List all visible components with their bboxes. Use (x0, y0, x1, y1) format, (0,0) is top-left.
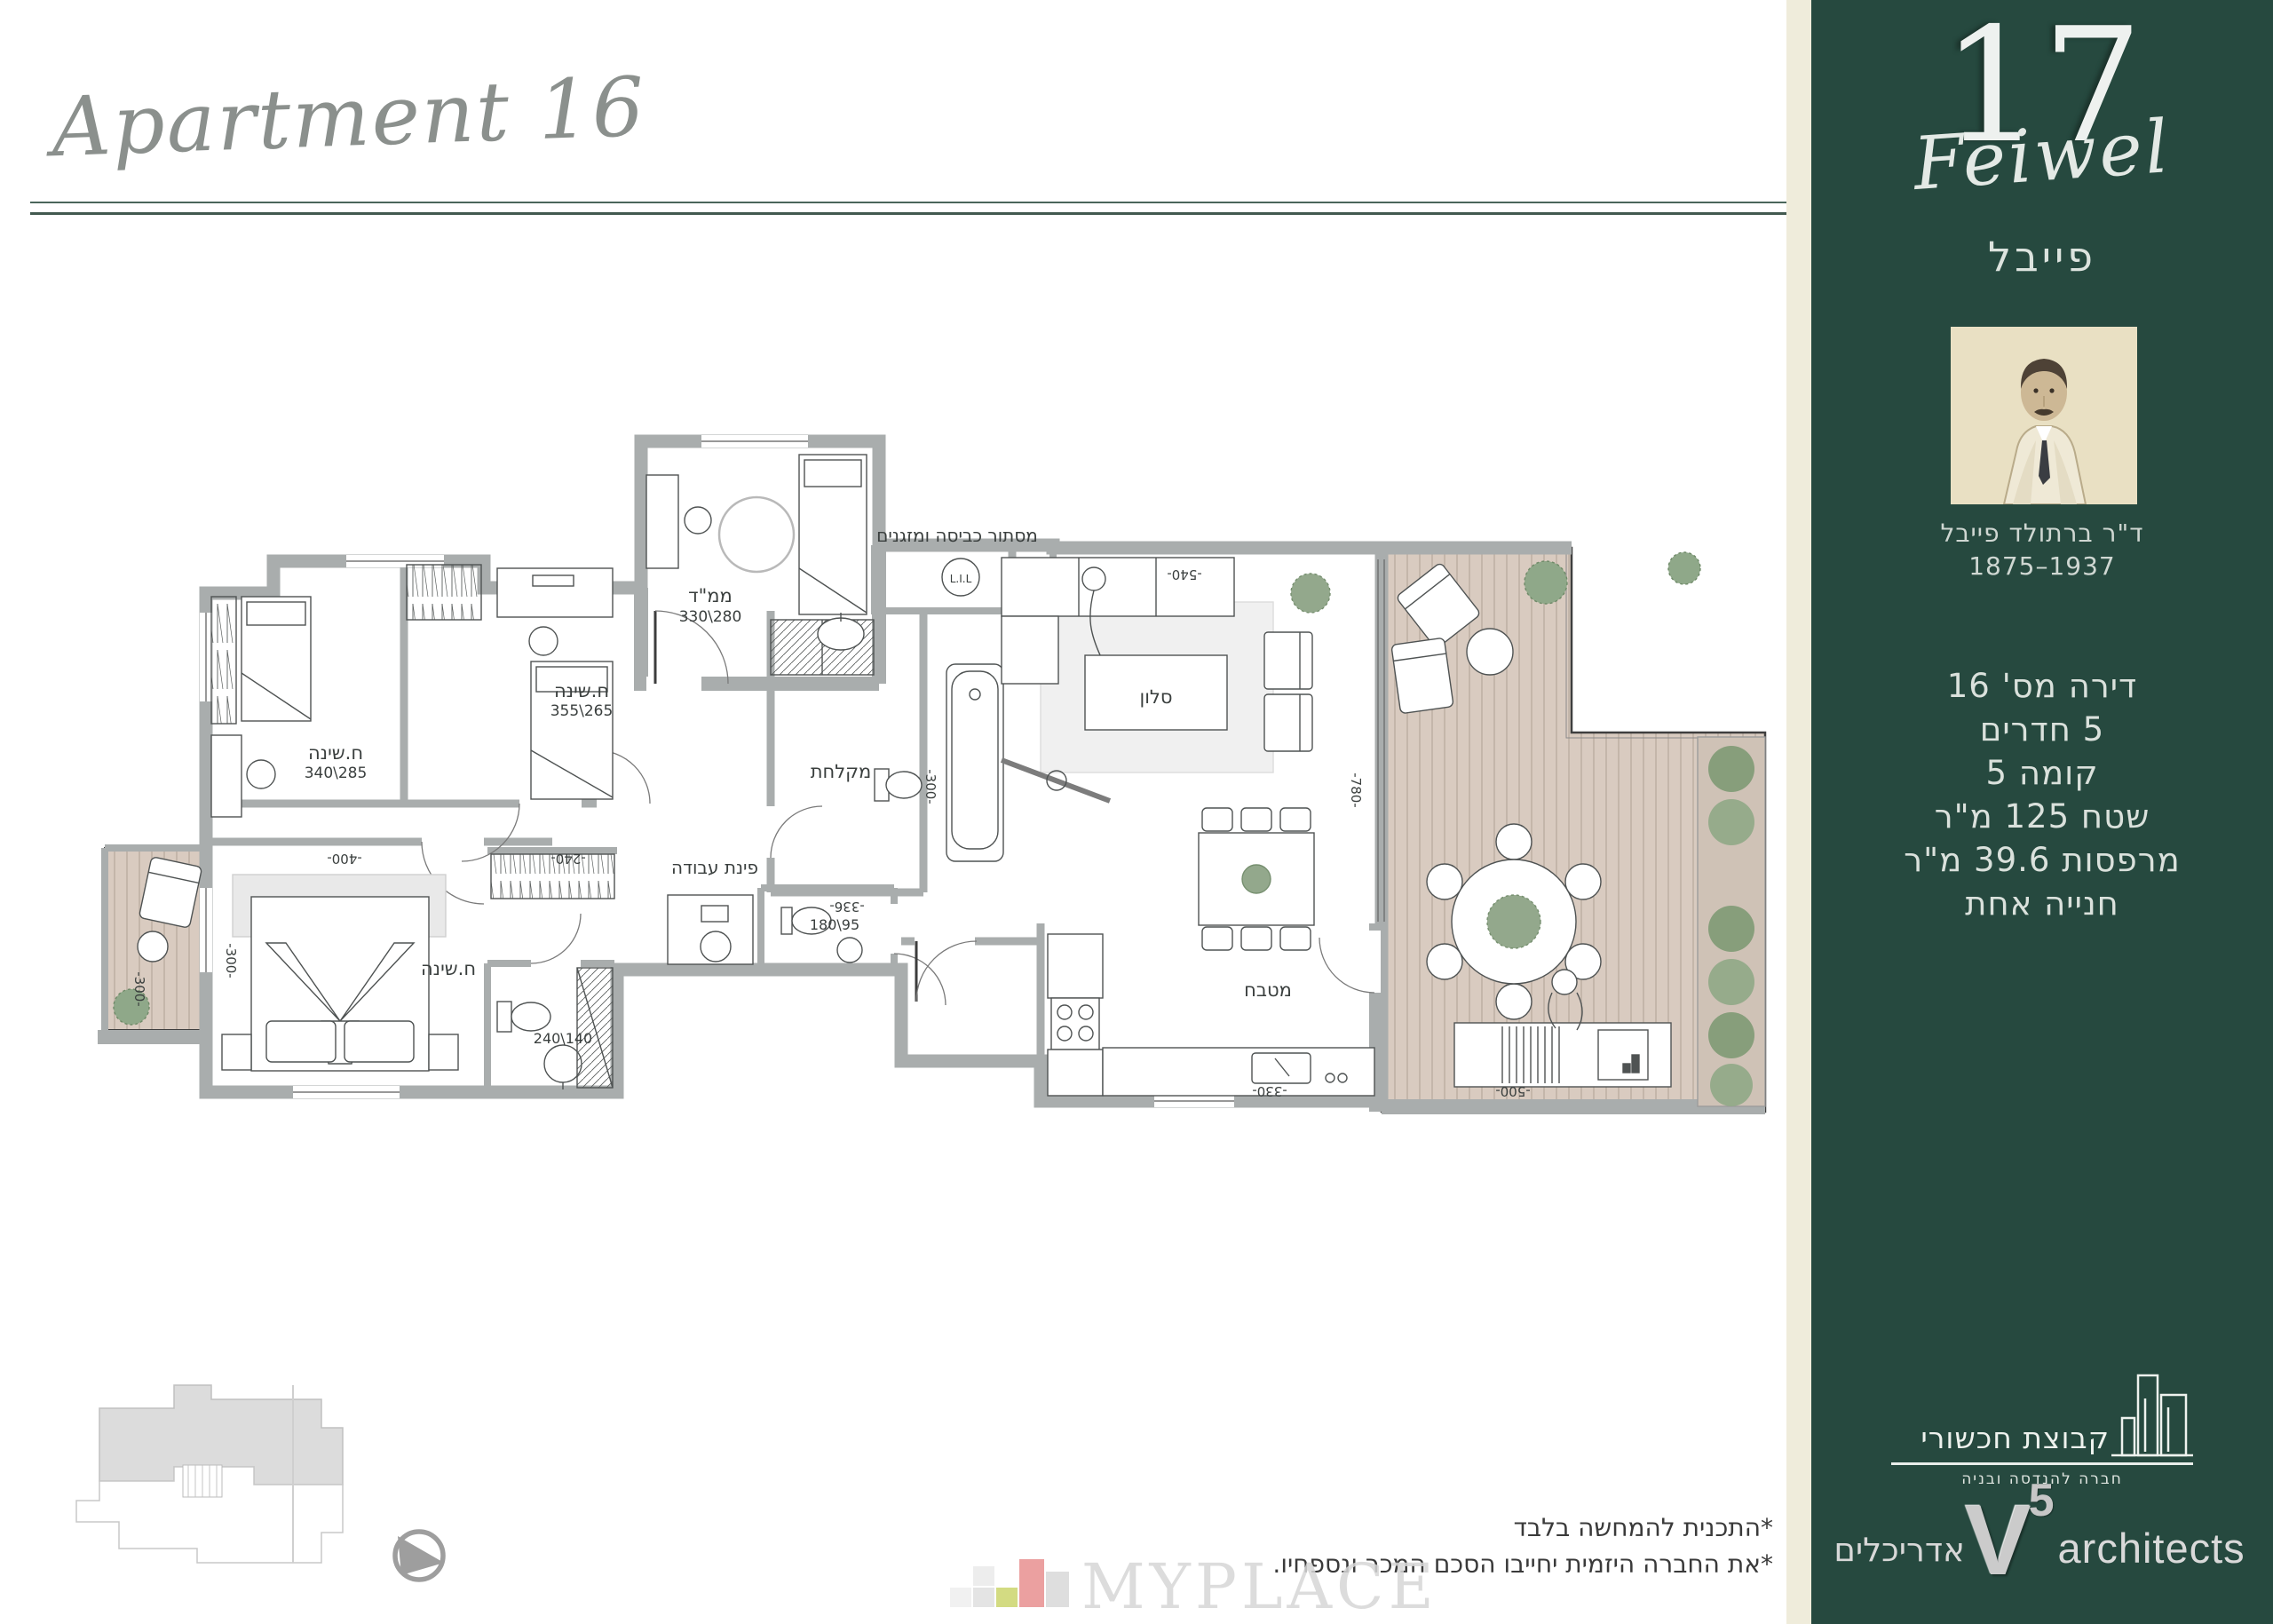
plan-label: -400- (327, 851, 361, 867)
plan-label: -300- (923, 769, 939, 804)
info-sidebar: 17 Feiwel פייבל ד"ר ברתולד פייבל 1875–19… (1811, 0, 2273, 1624)
apartment-details: דירה מס' 16 5 חדרים קומה 5 שטח 125 מ"ר מ… (1811, 664, 2273, 925)
building-name-hebrew: פייבל (1811, 233, 2273, 281)
plan-label: -336- (829, 899, 864, 915)
portrait-name: ד"ר ברתולד פייבל (1811, 517, 2273, 550)
plan-label: מסתור כביסה ומזגנים (876, 525, 1038, 546)
buildings-icon (2111, 1372, 2193, 1461)
detail-apartment-number: דירה מס' 16 (1811, 664, 2273, 708)
plan-label: -240- (550, 851, 585, 867)
plan-label: ממ"ד (688, 585, 733, 606)
hachshouri-logo: קבוצת חכשורי חברה להנדסה ובניה (1891, 1372, 2193, 1488)
v5-hebrew: אדריכלים (1833, 1531, 1965, 1569)
plan-label: -540- (1167, 566, 1201, 582)
plan-label: ח.שינה (308, 742, 363, 764)
plan-label: 355\265 (550, 702, 614, 720)
page: { "page": { "title": "Apartment 16" }, "… (0, 0, 2273, 1624)
north-arrow-icon (395, 1532, 444, 1580)
portrait-years: 1875–1937 (1811, 550, 2273, 582)
floor-plan: מסתור כביסה ומזגניםממ"ד330\280ח.שינה355\… (0, 0, 1786, 1624)
plan-label: 340\285 (305, 764, 368, 782)
plan-label: -500- (1495, 1083, 1530, 1099)
plan-label: 240\140 (534, 1030, 592, 1047)
plan-label: פינת עבודה (671, 857, 758, 878)
portrait-caption: ד"ר ברתולד פייבל 1875–1937 (1811, 517, 2273, 582)
v5-letter: V5 (1965, 1501, 2031, 1580)
detail-parking: חנייה אחת (1811, 882, 2273, 925)
plan-label: -300- (223, 943, 239, 978)
v5-architects-logo: אדריכליםV5architects (1811, 1501, 2273, 1580)
detail-floor: קומה 5 (1811, 751, 2273, 795)
accent-strip (1786, 0, 1811, 1624)
key-plan (76, 1385, 343, 1563)
portrait-photo (1951, 327, 2137, 504)
hachshouri-title: קבוצת חכשורי (1921, 1421, 2110, 1455)
v5-number: 5 (2029, 1477, 2055, 1524)
plan-label: מקלחת (811, 761, 872, 782)
plan-label: סלון (1139, 686, 1172, 708)
myplace-logo-icon (948, 1549, 1081, 1618)
plan-label: 330\280 (679, 608, 742, 626)
detail-balconies: מרפסות 39.6 מ"ר (1811, 838, 2273, 882)
detail-area: שטח 125 מ"ר (1811, 795, 2273, 838)
myplace-watermark: MYPLACE (948, 1549, 1438, 1618)
disclaimer-line: *התכנית להמחשה בלבד (1272, 1509, 1773, 1546)
plan-label: ח.שינה (554, 680, 609, 701)
plan-label: ח.שינה (421, 958, 476, 979)
plan-label: מטבח (1244, 979, 1292, 1001)
plan-label: 180\95 (810, 916, 859, 933)
detail-rooms: 5 חדרים (1811, 708, 2273, 751)
plan-label: -780- (1348, 772, 1364, 807)
myplace-logo-text: MYPLACE (1081, 1556, 1438, 1618)
portrait-illustration (1951, 327, 2137, 504)
plan-label: L.I.L (950, 573, 972, 585)
v5-latin: architects (2058, 1524, 2245, 1573)
plan-label: -330- (1252, 1083, 1287, 1099)
plan-label: -300- (131, 971, 147, 1006)
